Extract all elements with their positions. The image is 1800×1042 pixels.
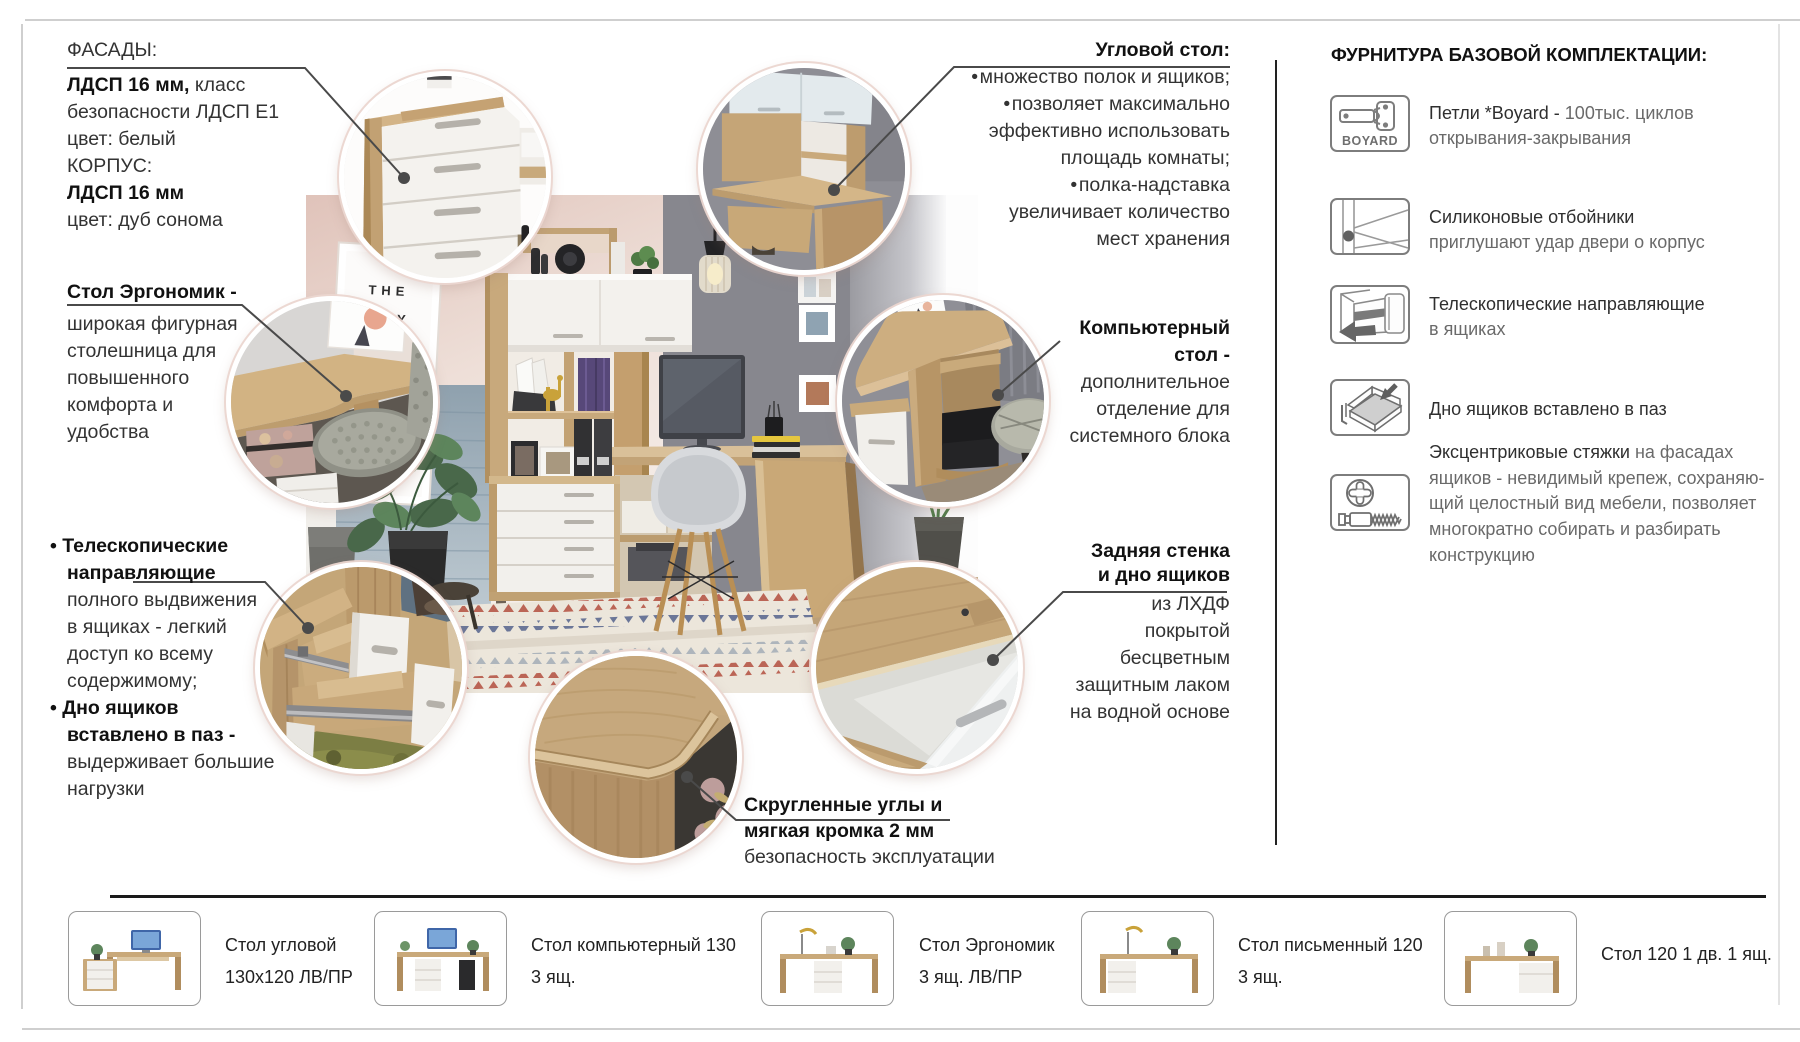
svg-text:BOYARD: BOYARD [1342, 134, 1398, 148]
